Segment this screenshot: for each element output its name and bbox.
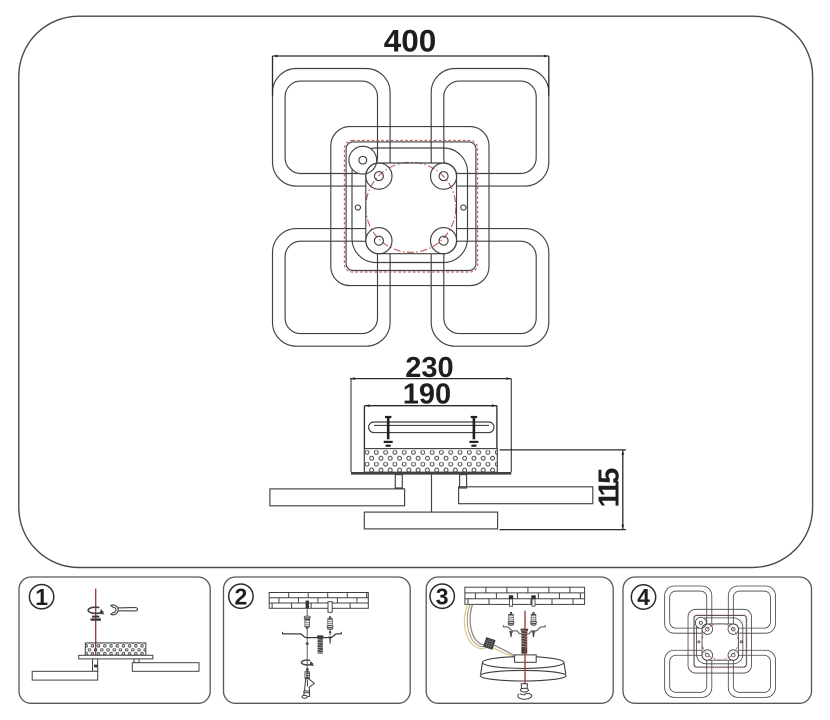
svg-text:2: 2 — [235, 583, 248, 609]
svg-text:1: 1 — [35, 584, 48, 610]
svg-text:190: 190 — [403, 379, 451, 411]
svg-text:115: 115 — [594, 468, 626, 508]
svg-text:4: 4 — [637, 584, 650, 610]
svg-text:400: 400 — [384, 23, 437, 59]
svg-text:3: 3 — [436, 583, 449, 609]
